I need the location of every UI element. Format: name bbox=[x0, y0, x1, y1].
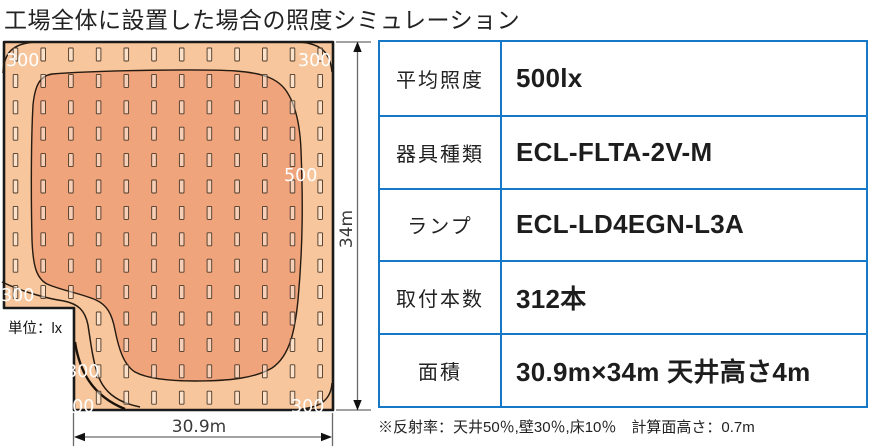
lamp-symbol bbox=[69, 206, 74, 219]
lamp-symbol bbox=[263, 338, 268, 351]
contour-label-200: 200 bbox=[61, 397, 94, 417]
lamp-symbol bbox=[207, 259, 212, 272]
lamp-symbol bbox=[69, 180, 74, 193]
row-label-fixture-type: 器具種類 bbox=[380, 117, 502, 188]
unit-label: 単位：lx bbox=[8, 320, 63, 337]
lamp-symbol bbox=[41, 233, 46, 246]
row-label-average-illuminance: 平均照度 bbox=[380, 42, 502, 115]
lamp-symbol bbox=[152, 101, 157, 114]
lamp-symbol bbox=[41, 127, 46, 140]
arrow-down-icon bbox=[353, 400, 361, 411]
row-label-area: 面積 bbox=[380, 335, 502, 406]
lamp-symbol bbox=[152, 312, 157, 325]
lamp-symbol bbox=[13, 74, 18, 87]
lamp-symbol bbox=[235, 391, 240, 404]
table-row: 取付本数 312本 bbox=[380, 260, 866, 333]
lamp-symbol bbox=[235, 259, 240, 272]
lamp-symbol bbox=[69, 127, 74, 140]
lamp-symbol bbox=[235, 127, 240, 140]
contour-label-300-top-left: 300 bbox=[6, 51, 39, 71]
lamp-symbol bbox=[263, 233, 268, 246]
lamp-symbol bbox=[318, 206, 323, 219]
lamp-symbol bbox=[124, 365, 129, 378]
lamp-symbol bbox=[318, 101, 323, 114]
lamp-symbol bbox=[13, 259, 18, 272]
lamp-symbol bbox=[318, 180, 323, 193]
lamp-symbol bbox=[124, 391, 129, 404]
lamp-symbol bbox=[207, 338, 212, 351]
lamp-symbol bbox=[263, 127, 268, 140]
lamp-symbol bbox=[318, 312, 323, 325]
lamp-symbol bbox=[152, 233, 157, 246]
lamp-symbol bbox=[13, 154, 18, 167]
lamp-symbol bbox=[152, 127, 157, 140]
zone-over-500lx bbox=[31, 70, 302, 381]
lamp-symbol bbox=[290, 127, 295, 140]
footnote: ※反射率：天井50％,壁30％,床10％ 計算面高さ：0.7m bbox=[378, 416, 755, 437]
lamp-symbol bbox=[207, 391, 212, 404]
lamp-symbol bbox=[318, 286, 323, 299]
width-dimension-label: 30.9m bbox=[172, 417, 226, 437]
lamp-symbol bbox=[96, 74, 101, 87]
lamp-symbol bbox=[41, 154, 46, 167]
lamp-symbol bbox=[263, 259, 268, 272]
lamp-symbol bbox=[207, 312, 212, 325]
lamp-symbol bbox=[318, 127, 323, 140]
contour-label-300-mid-left: 300 bbox=[1, 286, 34, 306]
lamp-symbol bbox=[290, 365, 295, 378]
lamp-symbol bbox=[179, 48, 184, 61]
lamp-symbol bbox=[207, 365, 212, 378]
lamp-symbol bbox=[41, 180, 46, 193]
lamp-symbol bbox=[152, 180, 157, 193]
lamp-symbol bbox=[318, 74, 323, 87]
lamp-symbol bbox=[69, 101, 74, 114]
lamp-symbol bbox=[69, 259, 74, 272]
contour-label-300-bottom-right: 300 bbox=[291, 397, 324, 417]
lamp-symbol bbox=[290, 48, 295, 61]
lamp-symbol bbox=[41, 286, 46, 299]
row-label-lamp-count: 取付本数 bbox=[380, 262, 502, 333]
lamp-symbol bbox=[69, 286, 74, 299]
lamp-symbol bbox=[152, 48, 157, 61]
lamp-symbol bbox=[318, 154, 323, 167]
lamp-symbol bbox=[96, 154, 101, 167]
lamp-symbol bbox=[179, 206, 184, 219]
lamp-symbol bbox=[13, 127, 18, 140]
lamp-symbol bbox=[124, 259, 129, 272]
lamp-symbol bbox=[96, 101, 101, 114]
lamp-symbol bbox=[263, 48, 268, 61]
table-row: ランプ ECL-LD4EGN-L3A bbox=[380, 188, 866, 261]
lamp-symbol bbox=[263, 286, 268, 299]
lamp-symbol bbox=[207, 127, 212, 140]
lamp-symbol bbox=[263, 101, 268, 114]
lamp-symbol bbox=[41, 74, 46, 87]
lamp-symbol bbox=[290, 154, 295, 167]
lamp-symbol bbox=[152, 338, 157, 351]
lamp-symbol bbox=[13, 180, 18, 193]
lamp-symbol bbox=[263, 206, 268, 219]
lamp-symbol bbox=[152, 259, 157, 272]
lamp-symbol bbox=[207, 233, 212, 246]
table-row: 器具種類 ECL-FLTA-2V-M bbox=[380, 115, 866, 188]
lamp-symbol bbox=[290, 286, 295, 299]
lamp-symbol bbox=[13, 206, 18, 219]
lamp-symbol bbox=[207, 48, 212, 61]
lamp-symbol bbox=[235, 74, 240, 87]
lamp-symbol bbox=[124, 101, 129, 114]
lamp-symbol bbox=[124, 154, 129, 167]
table-row: 平均照度 500lx bbox=[380, 42, 866, 115]
lamp-symbol bbox=[290, 206, 295, 219]
lamp-symbol bbox=[96, 206, 101, 219]
row-label-lamp: ランプ bbox=[380, 190, 502, 261]
lamp-symbol bbox=[179, 101, 184, 114]
lamp-symbol bbox=[69, 74, 74, 87]
lamp-symbol bbox=[179, 286, 184, 299]
lamp-symbol bbox=[96, 312, 101, 325]
lamp-symbol bbox=[235, 206, 240, 219]
lamp-symbol bbox=[263, 365, 268, 378]
lamp-symbol bbox=[41, 101, 46, 114]
illuminance-plan-diagram: 300 300 500 300 300 200 300 単位：lx 34m 30… bbox=[0, 0, 375, 447]
lamp-symbol bbox=[263, 74, 268, 87]
lamp-symbol bbox=[179, 312, 184, 325]
lamp-symbol bbox=[96, 391, 101, 404]
lamp-symbol bbox=[124, 233, 129, 246]
lamp-symbol bbox=[41, 48, 46, 61]
lamp-symbol bbox=[96, 338, 101, 351]
lamp-symbol bbox=[124, 127, 129, 140]
lamp-symbol bbox=[69, 48, 74, 61]
lamp-symbol bbox=[124, 48, 129, 61]
lamp-symbol bbox=[290, 74, 295, 87]
lamp-symbol bbox=[96, 48, 101, 61]
lamp-symbol bbox=[179, 154, 184, 167]
lamp-symbol bbox=[207, 206, 212, 219]
lamp-symbol bbox=[152, 74, 157, 87]
height-dimension-label: 34m bbox=[337, 210, 357, 248]
lamp-symbol bbox=[263, 391, 268, 404]
lamp-symbol bbox=[290, 101, 295, 114]
lamp-symbol bbox=[318, 365, 323, 378]
lamp-symbol bbox=[318, 259, 323, 272]
table-row: 面積 30.9m×34m 天井高さ4m bbox=[380, 333, 866, 406]
lamp-symbol bbox=[235, 101, 240, 114]
lamp-symbol bbox=[179, 180, 184, 193]
row-value-fixture-type: ECL-FLTA-2V-M bbox=[502, 117, 866, 188]
lamp-symbol bbox=[124, 180, 129, 193]
row-value-area: 30.9m×34m 天井高さ4m bbox=[502, 335, 866, 406]
lamp-symbol bbox=[290, 259, 295, 272]
lamp-symbol bbox=[41, 259, 46, 272]
lamp-symbol bbox=[96, 286, 101, 299]
lamp-symbol bbox=[290, 312, 295, 325]
lamp-symbol bbox=[96, 259, 101, 272]
lamp-symbol bbox=[13, 101, 18, 114]
lamp-symbol bbox=[124, 312, 129, 325]
lamp-symbol bbox=[124, 74, 129, 87]
lamp-symbol bbox=[207, 180, 212, 193]
lamp-symbol bbox=[179, 233, 184, 246]
contour-label-300-notch: 300 bbox=[66, 362, 99, 382]
lamp-symbol bbox=[179, 127, 184, 140]
lamp-symbol bbox=[207, 286, 212, 299]
lamp-symbol bbox=[179, 74, 184, 87]
lamp-symbol bbox=[69, 233, 74, 246]
lamp-symbol bbox=[207, 101, 212, 114]
lamp-symbol bbox=[290, 233, 295, 246]
lamp-symbol bbox=[179, 391, 184, 404]
lamp-symbol bbox=[179, 338, 184, 351]
row-value-lamp-count: 312本 bbox=[502, 262, 866, 333]
lamp-symbol bbox=[152, 365, 157, 378]
lamp-symbol bbox=[179, 259, 184, 272]
lamp-symbol bbox=[207, 74, 212, 87]
lamp-symbol bbox=[318, 338, 323, 351]
lamp-symbol bbox=[318, 233, 323, 246]
lamp-symbol bbox=[235, 233, 240, 246]
arrow-left-icon bbox=[74, 433, 85, 441]
lamp-symbol bbox=[96, 180, 101, 193]
lamp-symbol bbox=[96, 233, 101, 246]
lamp-symbol bbox=[124, 338, 129, 351]
contour-label-500: 500 bbox=[284, 166, 317, 186]
lamp-symbol bbox=[124, 206, 129, 219]
lamp-symbol bbox=[235, 312, 240, 325]
lamp-symbol bbox=[263, 180, 268, 193]
lamp-symbol bbox=[235, 154, 240, 167]
lamp-symbol bbox=[152, 391, 157, 404]
row-value-average-illuminance: 500lx bbox=[502, 42, 866, 115]
lamp-symbol bbox=[235, 338, 240, 351]
lamp-symbol bbox=[13, 233, 18, 246]
lamp-symbol bbox=[207, 154, 212, 167]
lamp-symbol bbox=[152, 206, 157, 219]
arrow-up-icon bbox=[353, 42, 361, 53]
row-value-lamp: ECL-LD4EGN-L3A bbox=[502, 190, 866, 261]
lamp-symbol bbox=[96, 127, 101, 140]
arrow-right-icon bbox=[321, 433, 332, 441]
spec-table: 平均照度 500lx 器具種類 ECL-FLTA-2V-M ランプ ECL-LD… bbox=[378, 40, 868, 408]
lamp-symbol bbox=[290, 338, 295, 351]
lamp-symbol bbox=[235, 180, 240, 193]
lamp-symbol bbox=[41, 206, 46, 219]
lamp-symbol bbox=[235, 286, 240, 299]
lamp-symbol bbox=[152, 154, 157, 167]
lamp-symbol bbox=[179, 365, 184, 378]
lamp-symbol bbox=[235, 48, 240, 61]
lamp-symbol bbox=[124, 286, 129, 299]
lamp-symbol bbox=[235, 365, 240, 378]
lamp-symbol bbox=[263, 154, 268, 167]
lamp-symbol bbox=[152, 286, 157, 299]
lamp-symbol bbox=[263, 312, 268, 325]
lamp-symbol bbox=[69, 154, 74, 167]
contour-label-300-top-right: 300 bbox=[298, 51, 331, 71]
